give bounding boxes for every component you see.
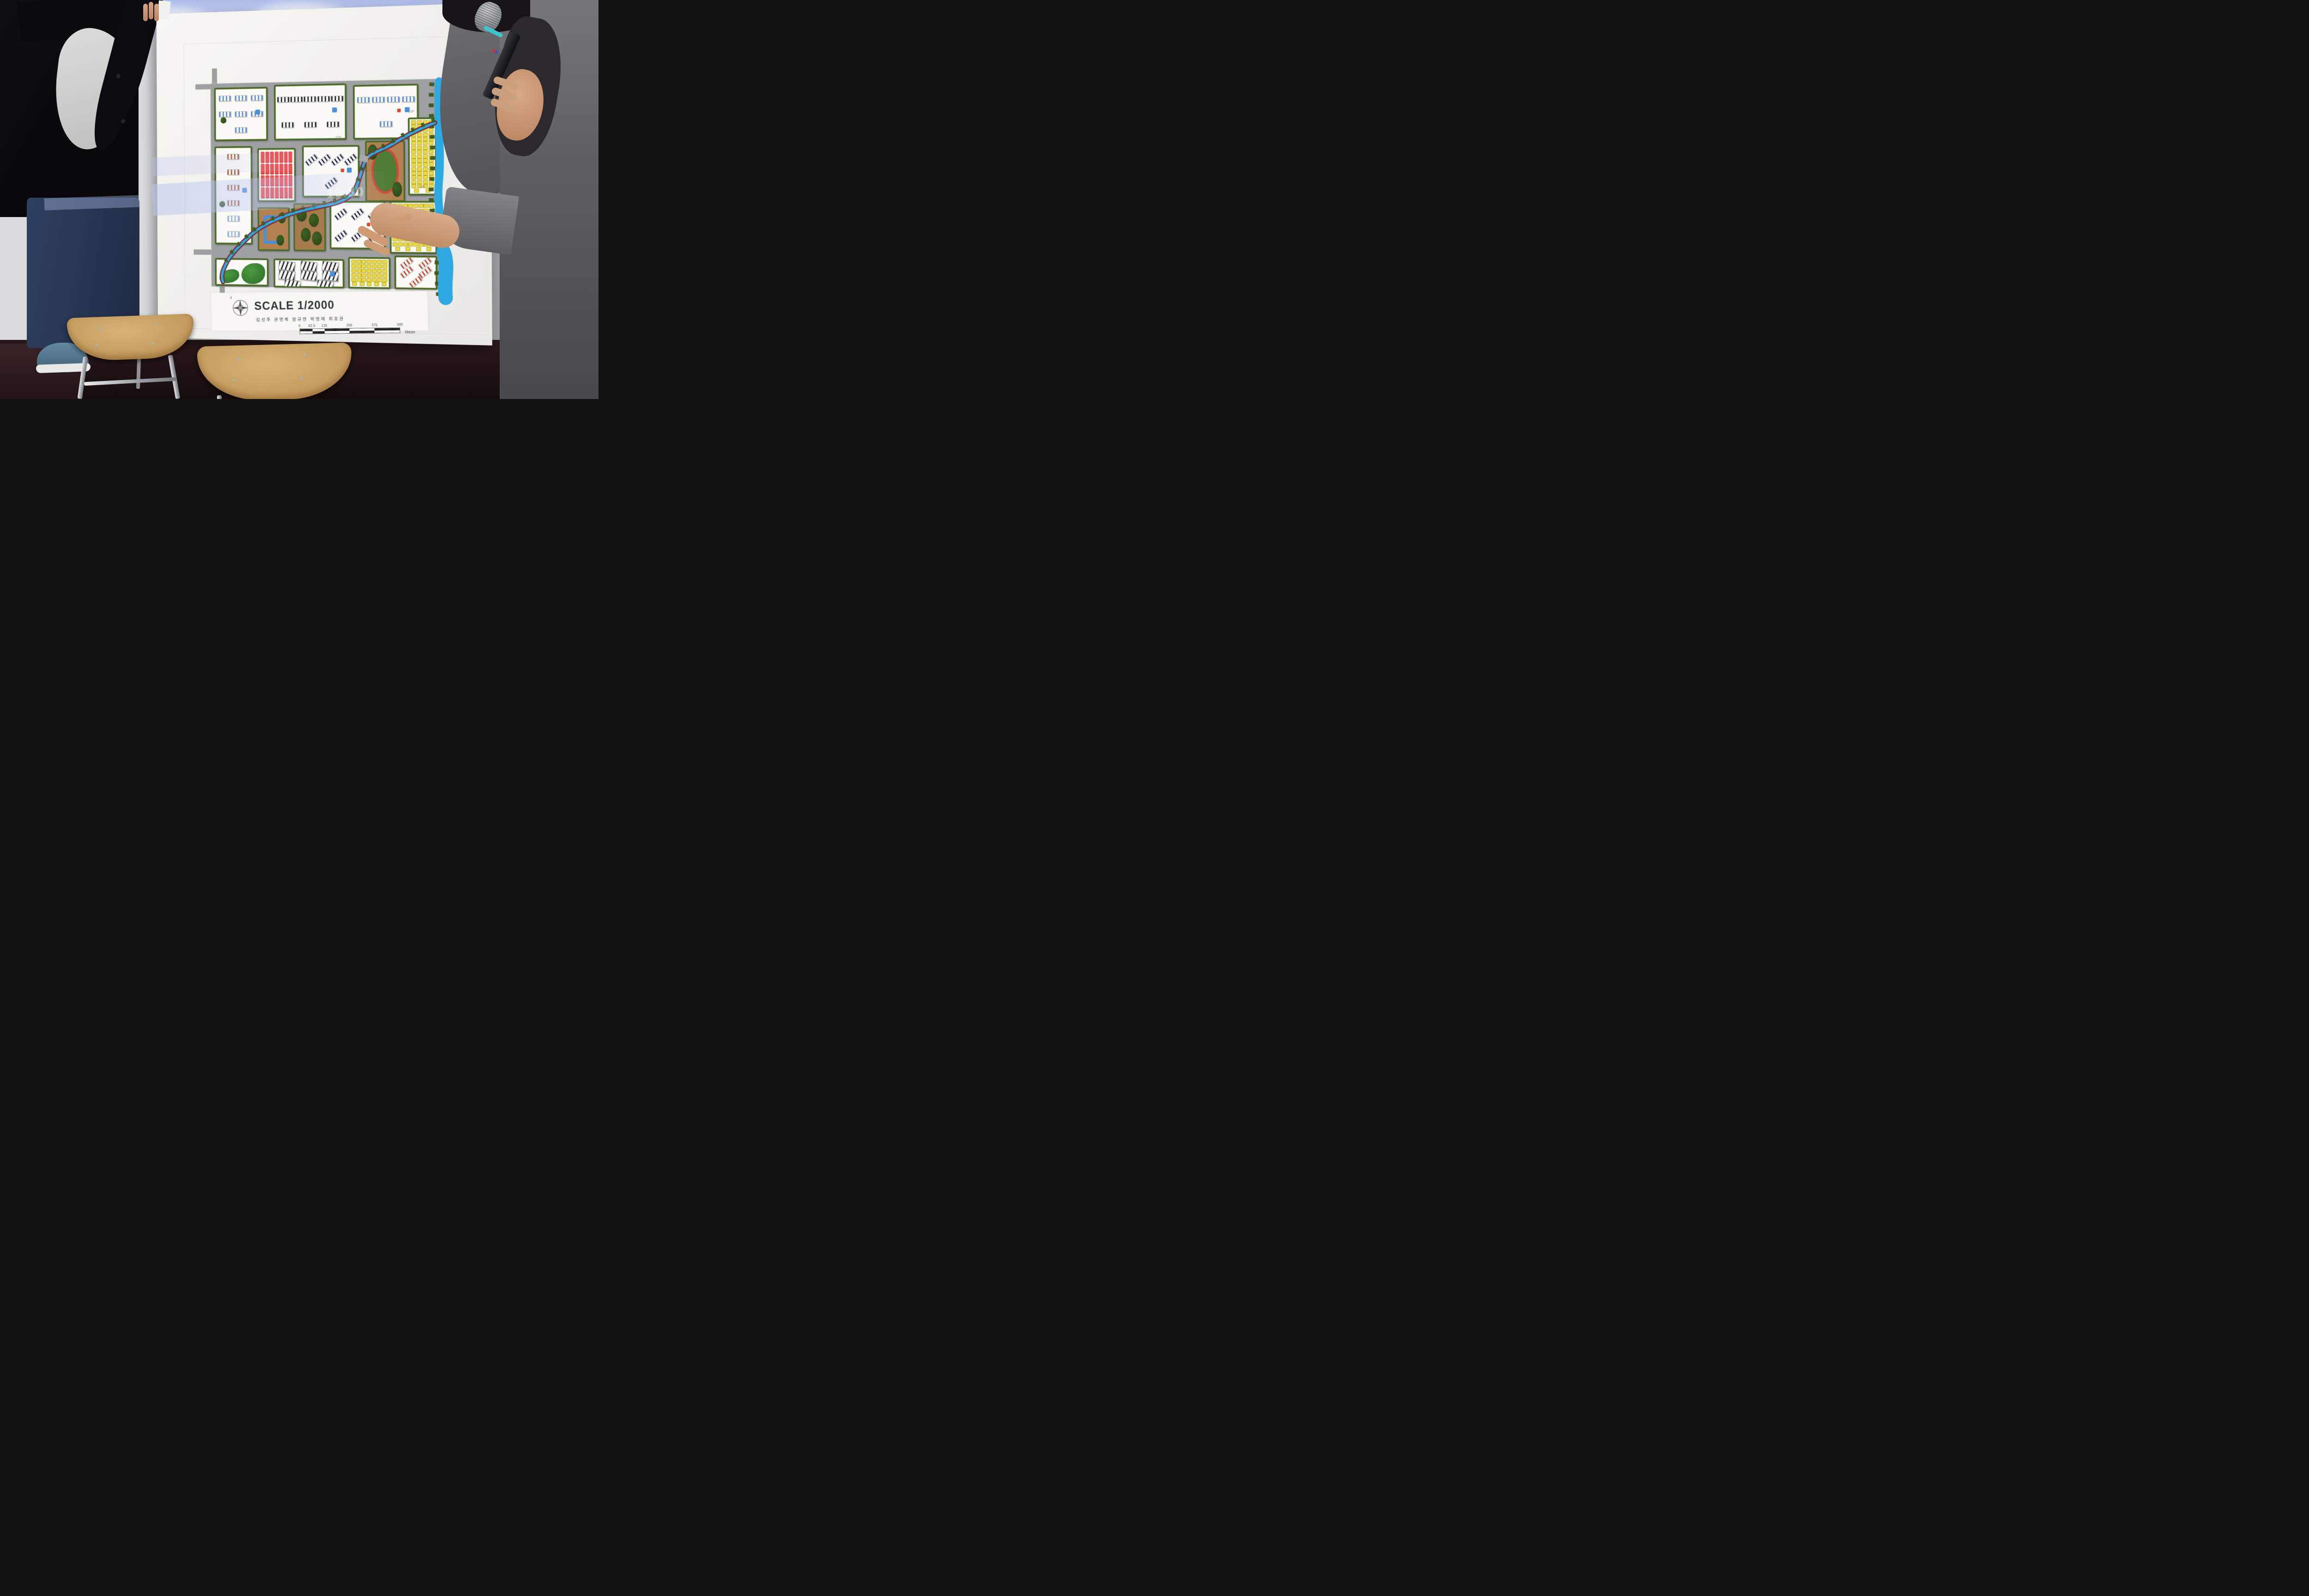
scale-tick-label: 0 — [298, 324, 300, 328]
scale-tick-label: 375 — [371, 323, 377, 327]
compass-north-label: N — [230, 295, 232, 300]
scale-tick-label: 500 — [397, 322, 403, 326]
scale-tick-label: 125 — [321, 323, 327, 327]
scale-segment — [375, 330, 400, 333]
scale-segment — [300, 331, 313, 333]
scale-title: SCALE 1/2000 — [254, 297, 367, 313]
scale-segment — [350, 331, 375, 333]
floor — [0, 340, 598, 399]
scale-segment — [312, 331, 325, 333]
compass-rose-icon: N — [230, 295, 251, 319]
authors-names: 김성주 권영복 왕규연 박영재 최호권 — [256, 314, 368, 323]
model-board: 15F10F10F N SCALE 1/2000 김성주 권영복 왕규연 박영재… — [157, 3, 492, 345]
scale-segment — [325, 331, 350, 333]
scale-tick-label: 250 — [346, 323, 352, 327]
scale-bar-unit: Meter — [405, 330, 416, 334]
river-widening — [443, 252, 446, 297]
photo-scene: 15F10F10F N SCALE 1/2000 김성주 권영복 왕규연 박영재… — [0, 0, 598, 399]
floor-patch — [0, 344, 83, 399]
projected-clock: 10:30 — [326, 184, 365, 202]
scale-bar: 062.5125250375500 Meter — [299, 322, 400, 334]
scale-tick-label: 62.5 — [308, 324, 315, 328]
